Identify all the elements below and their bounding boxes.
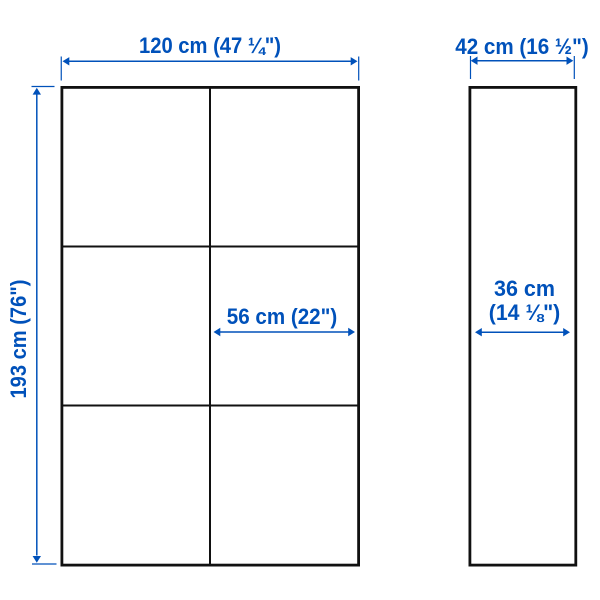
svg-text:56 cm (22"): 56 cm (22") <box>227 304 338 329</box>
svg-text:(14 ⅛"): (14 ⅛") <box>489 300 561 325</box>
svg-text:120 cm (47 ¼"): 120 cm (47 ¼") <box>139 33 281 58</box>
svg-text:42 cm (16 ½"): 42 cm (16 ½") <box>455 34 589 59</box>
svg-text:193 cm (76"): 193 cm (76") <box>6 280 31 399</box>
svg-text:36 cm: 36 cm <box>494 276 555 301</box>
